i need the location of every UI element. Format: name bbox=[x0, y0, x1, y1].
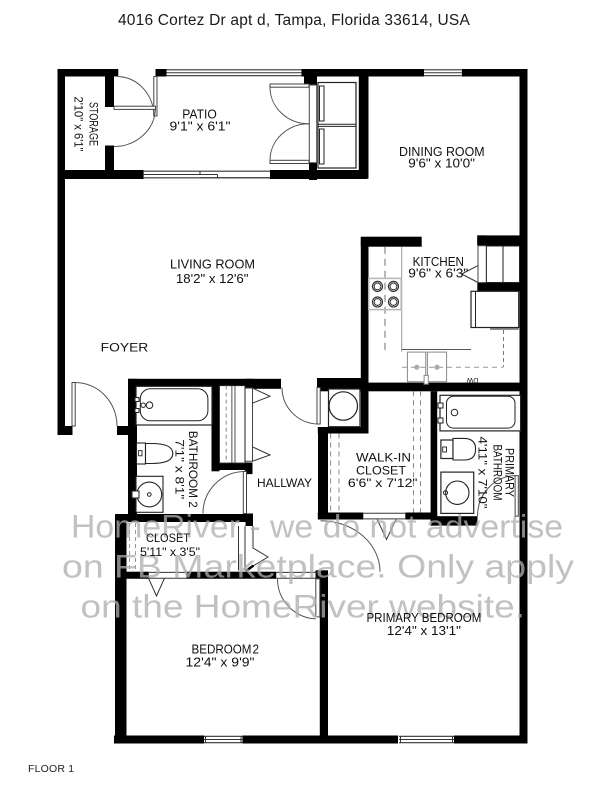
svg-text:6'6" x 7'12": 6'6" x 7'12" bbox=[348, 476, 418, 490]
svg-text:12'4" x 9'9": 12'4" x 9'9" bbox=[186, 655, 255, 669]
svg-text:9'1" x 6'1": 9'1" x 6'1" bbox=[170, 120, 231, 134]
svg-text:PRIMARY BEDROOM: PRIMARY BEDROOM bbox=[367, 611, 482, 625]
svg-text:HomeRiver - we do not advertis: HomeRiver - we do not advertise bbox=[71, 509, 563, 545]
svg-text:18'2" x 12'6": 18'2" x 12'6" bbox=[176, 272, 249, 286]
svg-text:WALK-IN: WALK-IN bbox=[356, 451, 411, 465]
svg-text:CLOSET: CLOSET bbox=[146, 531, 191, 545]
svg-text:9'6" x 10'0": 9'6" x 10'0" bbox=[408, 157, 475, 171]
svg-text:BATHROOM 27'1" x 8'1": BATHROOM 27'1" x 8'1" bbox=[173, 431, 201, 508]
svg-text:12'4" x 13'1": 12'4" x 13'1" bbox=[387, 624, 461, 638]
svg-text:9'6" x 6'3": 9'6" x 6'3" bbox=[408, 267, 468, 281]
svg-text:PRIMARYBATHROOM4'11" x 7'10": PRIMARYBATHROOM4'11" x 7'10" bbox=[476, 437, 515, 509]
svg-text:HALLWAY: HALLWAY bbox=[257, 476, 312, 490]
svg-text:on FB Marketplace. Only apply: on FB Marketplace. Only apply bbox=[62, 549, 574, 585]
svg-text:5'11" x 3'5": 5'11" x 3'5" bbox=[140, 545, 200, 559]
svg-text:FOYER: FOYER bbox=[101, 341, 149, 355]
svg-text:STORAGE2'10" x 6'1": STORAGE2'10" x 6'1" bbox=[72, 97, 101, 152]
svg-text:LIVING ROOM: LIVING ROOM bbox=[170, 258, 255, 272]
svg-text:DW: DW bbox=[466, 376, 478, 383]
